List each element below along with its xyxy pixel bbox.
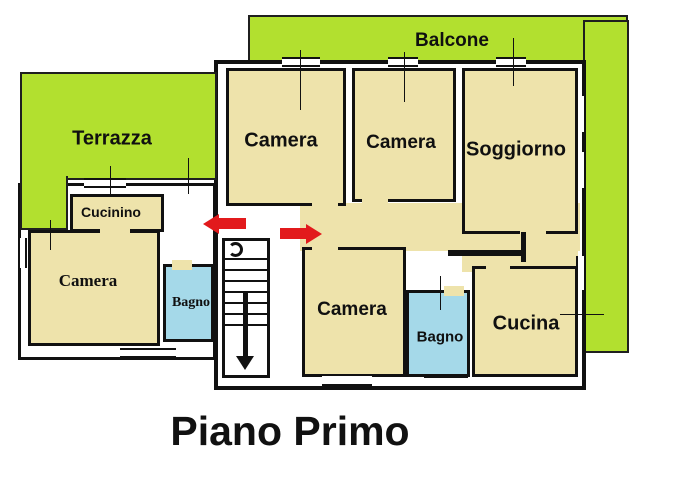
- entrance-arrow-left-body: [218, 218, 246, 229]
- survey-tick: [404, 52, 405, 102]
- window: [424, 376, 468, 388]
- cucina-label: Cucina: [493, 313, 560, 336]
- survey-tick: [560, 314, 604, 315]
- entrance-arrow-right-icon: [306, 224, 322, 244]
- survey-tick: [50, 220, 51, 250]
- interior-wall: [448, 250, 524, 256]
- survey-tick: [110, 166, 111, 194]
- door-gap: [312, 200, 338, 210]
- camera-west-label: Camera: [59, 271, 118, 291]
- door-gap: [312, 243, 338, 253]
- camera-south-label: Camera: [317, 299, 387, 321]
- door-gap: [486, 262, 510, 272]
- floor-plan: Balcone Terrazza Camera Camera Soggiorno…: [0, 0, 673, 481]
- entrance-arrow-right-body: [280, 228, 307, 239]
- door-gap: [100, 228, 130, 236]
- bagno-west-label: Bagno: [172, 295, 210, 311]
- cucinino-label: Cucinino: [81, 204, 141, 220]
- balcone-label: Balcone: [415, 30, 489, 52]
- terrazza-area-strip: [20, 176, 68, 230]
- window: [576, 152, 586, 188]
- window: [388, 57, 418, 67]
- entrance-arrow-left-icon: [203, 214, 219, 234]
- camera-northwest-label: Camera: [244, 130, 317, 153]
- balcone-area-right: [583, 20, 629, 353]
- page-title: Piano Primo: [170, 408, 409, 455]
- bagno-south-label: Bagno: [417, 329, 464, 346]
- interior-wall: [521, 232, 526, 262]
- window: [322, 374, 372, 386]
- survey-tick: [440, 276, 441, 310]
- window: [496, 57, 526, 67]
- balcony-door: [576, 256, 586, 290]
- winder-spiral-icon: [228, 242, 243, 257]
- camera-north-label: Camera: [366, 132, 436, 154]
- window: [576, 96, 586, 132]
- door-gap: [444, 286, 464, 296]
- window: [282, 57, 320, 67]
- door-gap: [362, 196, 388, 206]
- stair-direction-line: [243, 292, 248, 358]
- soggiorno-label: Soggiorno: [466, 139, 566, 162]
- survey-tick: [300, 50, 301, 110]
- survey-tick: [513, 38, 514, 86]
- window: [120, 348, 176, 358]
- stair-down-arrow-icon: [236, 356, 254, 370]
- terrace-door: [84, 178, 126, 188]
- terrazza-label: Terrazza: [72, 128, 152, 151]
- survey-tick: [188, 158, 189, 194]
- window: [18, 238, 27, 268]
- door-gap: [172, 260, 192, 270]
